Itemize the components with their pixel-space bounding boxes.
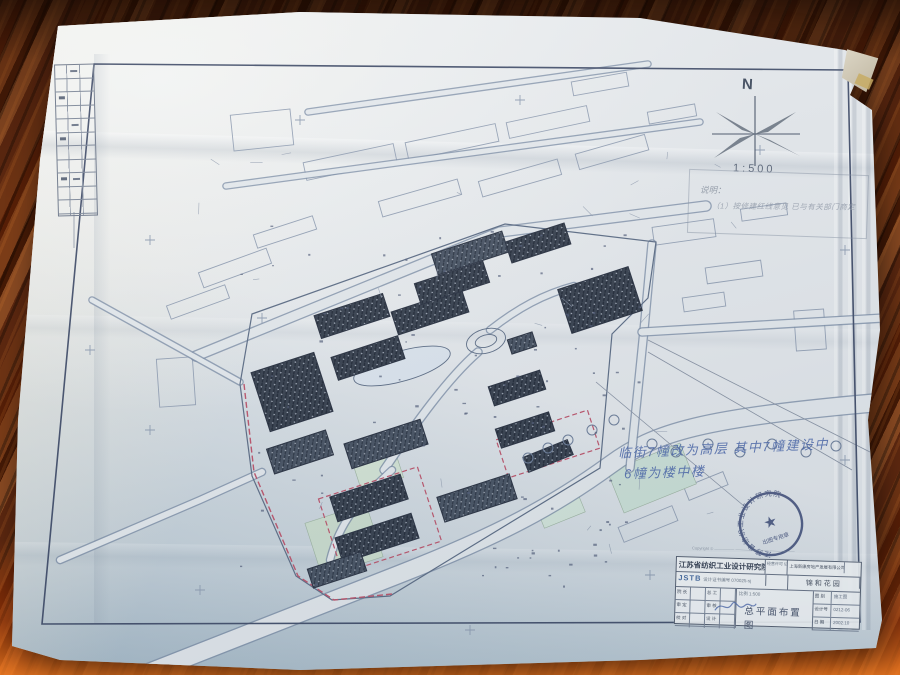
speckle <box>405 341 407 342</box>
speckle <box>506 567 509 568</box>
survey-cross <box>85 345 95 355</box>
blueprint-sheet: N 1:500 说明： （1）按修建红线意见 已与有关部门商定 临街7幢改为高层… <box>0 0 900 675</box>
photo-of-site-plan: N 1:500 说明： （1）按修建红线意见 已与有关部门商定 临街7幢改为高层… <box>0 0 900 675</box>
sketch-mark <box>667 152 668 159</box>
speckle <box>405 259 407 261</box>
speckle <box>591 268 593 270</box>
context-building <box>253 216 316 248</box>
sketch-mark <box>631 181 639 185</box>
speckle <box>595 432 597 434</box>
speckle <box>308 254 310 256</box>
speckle <box>493 548 496 549</box>
speckle <box>321 492 323 493</box>
speckle <box>609 480 612 482</box>
speckle <box>532 550 534 551</box>
speckle <box>532 552 535 554</box>
pencil-note-title: 说明： <box>700 184 726 196</box>
speckle <box>494 416 497 418</box>
client-name: 上海新康房地产发展有限公司南京分公司 <box>788 561 845 574</box>
speckle <box>606 521 609 523</box>
legend-row <box>55 65 93 79</box>
signature-cell: 院 长 <box>676 587 706 601</box>
speckle <box>270 226 273 227</box>
speckle <box>604 245 606 247</box>
compass-blade <box>714 134 755 158</box>
speckle <box>521 496 524 497</box>
survey-cross <box>145 425 155 435</box>
legend-row <box>56 119 94 133</box>
speckle <box>439 237 441 239</box>
sketch-mark <box>715 164 721 167</box>
speckle <box>622 428 625 430</box>
building-block <box>437 474 517 522</box>
speckle <box>347 307 349 309</box>
speckle <box>402 330 404 332</box>
sketch-mark <box>583 206 593 216</box>
speckle <box>516 375 519 377</box>
speckle <box>423 444 425 446</box>
compass-blade <box>755 134 800 156</box>
stamp-star-icon: ★ <box>762 512 780 532</box>
speckle <box>462 403 466 404</box>
sketch-mark <box>457 192 461 194</box>
legend-row <box>55 78 93 92</box>
sketch-mark <box>211 159 220 165</box>
survey-cross <box>295 115 305 125</box>
legend-row <box>57 132 95 146</box>
speckle <box>624 234 627 236</box>
speckle <box>495 566 497 568</box>
legend-strip <box>54 64 98 217</box>
speckle <box>258 452 260 454</box>
speckle <box>519 245 522 247</box>
speckle <box>605 561 607 563</box>
context-building <box>478 159 561 197</box>
speckle <box>287 406 289 408</box>
sketch-mark <box>707 512 714 514</box>
speckle <box>575 348 577 349</box>
context-building <box>156 357 195 407</box>
building-block <box>251 352 333 431</box>
building-block <box>267 430 334 474</box>
building-block <box>495 412 554 448</box>
speckle <box>569 564 572 566</box>
title-block: 江苏省纺织工业设计研究院 经营许可 证号 上海新康房地产发展有限公司南京分公司 … <box>674 556 862 630</box>
survey-cross <box>755 145 765 155</box>
legend-row <box>58 159 96 173</box>
blue-signature-scribble <box>712 595 759 619</box>
speckle <box>319 340 323 342</box>
survey-cross <box>145 235 155 245</box>
handwritten-note-line2: 6幢为楼中楼 <box>624 461 706 483</box>
speckle <box>540 235 542 237</box>
speckle <box>340 308 343 310</box>
north-arrow-label: N <box>742 76 754 94</box>
speckle <box>594 555 597 557</box>
signature-cell: 审 定 <box>675 600 705 614</box>
speckle <box>600 529 602 531</box>
speckle <box>498 275 501 277</box>
tree-icon <box>831 441 841 451</box>
speckle <box>323 313 326 314</box>
info-row: 日 期2002.10 <box>813 617 859 631</box>
institute-code-row: JSTB 设计证书编号 070025-sj <box>676 572 766 586</box>
pencil-note-line: （1）按修建红线意见 已与有关部门商定 <box>712 200 855 212</box>
speckle <box>419 286 422 288</box>
speckle <box>616 372 619 373</box>
speckle <box>398 294 401 295</box>
speckle <box>619 484 621 485</box>
speckle <box>272 265 274 266</box>
road <box>308 64 648 112</box>
road <box>226 122 700 186</box>
sketch-mark <box>609 544 611 554</box>
paper-surface: N 1:500 说明： （1）按修建红线意见 已与有关部门商定 临街7幢改为高层… <box>0 0 900 675</box>
speckle <box>593 312 595 314</box>
speckle <box>467 492 470 494</box>
speckle <box>558 550 560 552</box>
speckle <box>475 355 477 357</box>
speckle <box>603 394 606 396</box>
speckle <box>241 274 243 275</box>
tree-icon <box>609 415 619 425</box>
speckle <box>593 372 595 374</box>
speckle <box>540 272 542 274</box>
speckle <box>465 412 468 414</box>
context-building <box>506 106 590 139</box>
building-block <box>558 267 643 334</box>
legend-row <box>56 105 94 119</box>
speckle <box>517 557 519 558</box>
context-building <box>198 248 271 288</box>
legend-row <box>58 172 96 186</box>
speckle <box>491 231 494 233</box>
road <box>60 472 262 560</box>
institute-code: JSTB <box>678 573 701 583</box>
speckle <box>544 327 546 328</box>
speckle <box>551 508 553 510</box>
cert-line: 设计证书编号 070025-sj <box>703 577 751 584</box>
survey-cross <box>465 625 475 635</box>
context-building <box>230 109 293 151</box>
speckle <box>411 334 414 336</box>
info-grid: 图 别施工图设计号0212-06日 期2002.10 <box>813 591 860 631</box>
speckle <box>261 510 264 512</box>
speckle <box>536 406 539 407</box>
survey-cross <box>195 585 205 595</box>
speckle <box>271 376 273 377</box>
context-building <box>794 309 827 351</box>
loop-road <box>474 332 498 350</box>
speckle <box>240 566 242 567</box>
spacer-cell <box>766 575 789 590</box>
speckle <box>565 314 568 315</box>
legend-row <box>57 146 95 160</box>
speckle <box>563 586 565 588</box>
speckle <box>532 422 534 424</box>
survey-cross <box>840 245 850 255</box>
speckle <box>415 405 419 407</box>
speckle <box>609 524 611 526</box>
speckle <box>542 426 545 428</box>
speckle <box>504 384 506 386</box>
speckle <box>589 325 592 327</box>
sketch-mark <box>282 153 291 155</box>
legend-row <box>59 199 97 213</box>
sketch-mark <box>441 478 442 487</box>
context-building <box>378 179 461 217</box>
speckle <box>546 380 548 382</box>
speckle <box>379 376 382 378</box>
institute-name: 江苏省纺织工业设计研究院 <box>677 557 766 574</box>
speckle <box>443 270 445 272</box>
speckle <box>593 544 597 546</box>
survey-cross <box>645 570 655 580</box>
speckle <box>321 475 323 477</box>
signature-cell: 校 对 <box>675 613 705 627</box>
speckle <box>625 521 628 523</box>
speckle <box>454 389 457 391</box>
stamp-banner-text: 出图专用章 <box>761 530 790 546</box>
speckle <box>482 575 484 576</box>
sketch-mark <box>253 279 259 280</box>
speckle <box>549 575 552 576</box>
speckle <box>638 381 641 383</box>
compass-blade <box>716 112 755 134</box>
speckle <box>523 498 527 500</box>
speckle <box>638 306 641 307</box>
permit-label: 经营许可 证号 <box>766 560 789 575</box>
speckle <box>373 422 376 423</box>
legend-row <box>58 186 96 200</box>
sketch-mark <box>535 323 543 325</box>
sketch-mark <box>587 526 591 531</box>
speckle <box>292 480 295 481</box>
survey-cross <box>515 95 525 105</box>
compass-blade <box>755 112 796 134</box>
speckle <box>534 349 537 351</box>
speckle <box>315 583 318 585</box>
context-building <box>682 292 726 312</box>
project-name: 锦和花园 <box>788 576 860 589</box>
legend-row <box>56 92 94 106</box>
building-block <box>507 332 536 354</box>
speckle <box>399 379 401 380</box>
context-building <box>705 260 763 284</box>
speckle <box>383 254 385 256</box>
context-building <box>166 285 229 319</box>
road <box>642 318 884 332</box>
speckle <box>530 557 532 558</box>
